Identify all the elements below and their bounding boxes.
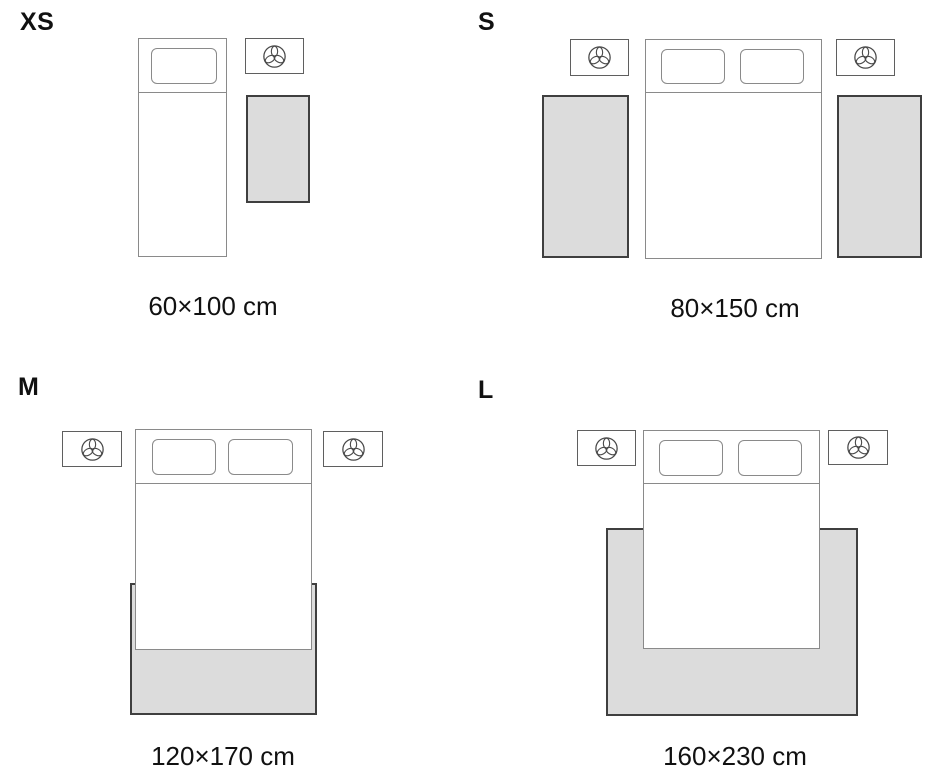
nightstand bbox=[836, 39, 895, 76]
bed-headboard bbox=[136, 430, 311, 484]
pillow bbox=[738, 440, 802, 476]
lamp-icon bbox=[844, 433, 873, 462]
pillow bbox=[152, 439, 216, 475]
bed-headboard bbox=[646, 40, 821, 93]
lamp-icon bbox=[585, 43, 614, 72]
nightstand bbox=[245, 38, 304, 74]
nightstand bbox=[577, 430, 636, 466]
nightstand bbox=[323, 431, 383, 467]
bed-headboard bbox=[644, 431, 819, 484]
lamp-icon bbox=[339, 435, 368, 464]
bed-double bbox=[135, 429, 312, 650]
bed-double bbox=[643, 430, 820, 649]
lamp-icon bbox=[851, 43, 880, 72]
rug-s-left bbox=[542, 95, 629, 258]
rug-s-right bbox=[837, 95, 922, 258]
panel-label-s: S bbox=[478, 8, 495, 37]
panel-label-m: M bbox=[18, 373, 39, 402]
rug-size-caption-xs: 60×100 cm bbox=[113, 293, 313, 319]
lamp-icon bbox=[260, 42, 289, 71]
rug-size-caption-m: 120×170 cm bbox=[123, 743, 323, 769]
nightstand bbox=[828, 430, 888, 465]
panel-label-l: L bbox=[478, 376, 494, 405]
rug-xs bbox=[246, 95, 310, 203]
pillow bbox=[151, 48, 217, 84]
rug-size-caption-l: 160×230 cm bbox=[635, 743, 835, 769]
pillow bbox=[661, 49, 725, 84]
nightstand bbox=[62, 431, 122, 467]
lamp-icon bbox=[78, 435, 107, 464]
bed-double bbox=[645, 39, 822, 259]
nightstand bbox=[570, 39, 629, 76]
bed-headboard bbox=[139, 39, 226, 93]
pillow bbox=[228, 439, 293, 475]
lamp-icon bbox=[592, 434, 621, 463]
pillow bbox=[740, 49, 804, 84]
panel-label-xs: XS bbox=[20, 8, 54, 37]
bed-single bbox=[138, 38, 227, 257]
rug-size-guide-diagram: XS 60×100 cm S bbox=[0, 0, 940, 780]
rug-size-caption-s: 80×150 cm bbox=[635, 295, 835, 321]
pillow bbox=[659, 440, 723, 476]
